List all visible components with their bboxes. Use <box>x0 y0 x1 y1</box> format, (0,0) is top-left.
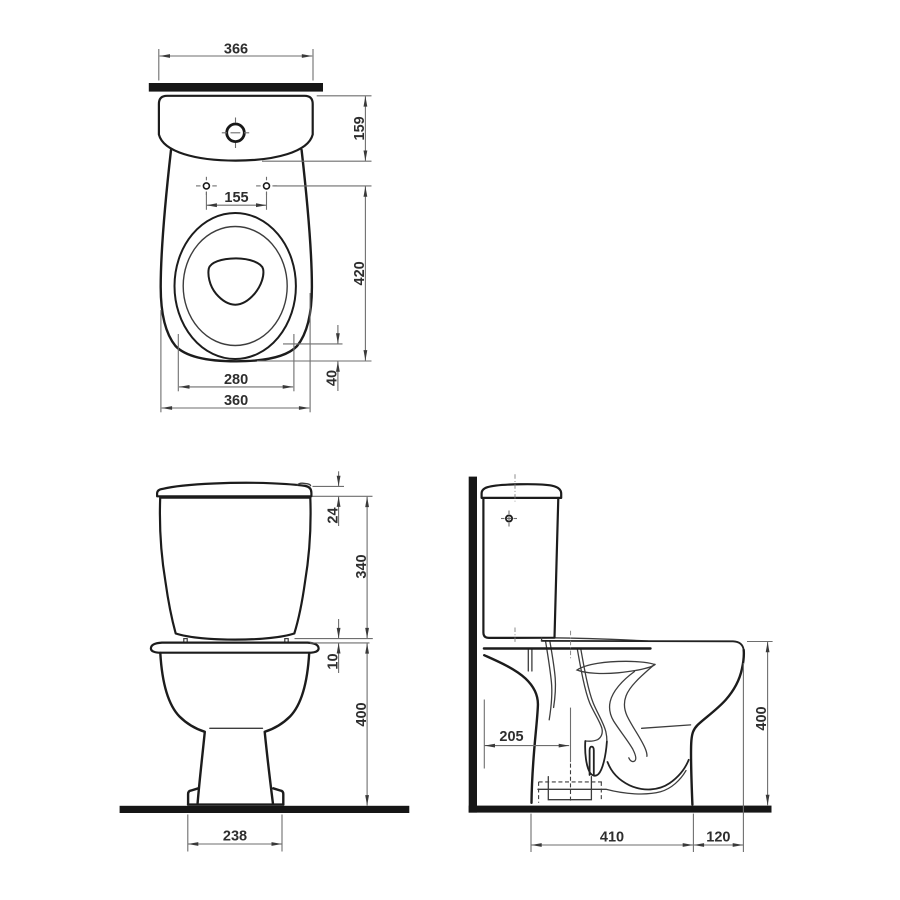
svg-text:280: 280 <box>224 372 248 388</box>
svg-text:24: 24 <box>325 507 341 523</box>
svg-text:340: 340 <box>354 554 370 578</box>
svg-text:159: 159 <box>352 116 368 140</box>
svg-text:155: 155 <box>224 190 248 206</box>
svg-text:360: 360 <box>224 393 248 409</box>
svg-text:40: 40 <box>325 370 341 386</box>
svg-text:366: 366 <box>224 42 248 58</box>
svg-text:410: 410 <box>600 829 624 845</box>
svg-text:10: 10 <box>325 653 341 669</box>
svg-text:420: 420 <box>352 261 368 285</box>
svg-text:400: 400 <box>754 706 770 730</box>
svg-text:120: 120 <box>706 829 730 845</box>
svg-text:205: 205 <box>499 729 523 745</box>
svg-text:238: 238 <box>223 829 247 845</box>
svg-text:400: 400 <box>354 702 370 726</box>
